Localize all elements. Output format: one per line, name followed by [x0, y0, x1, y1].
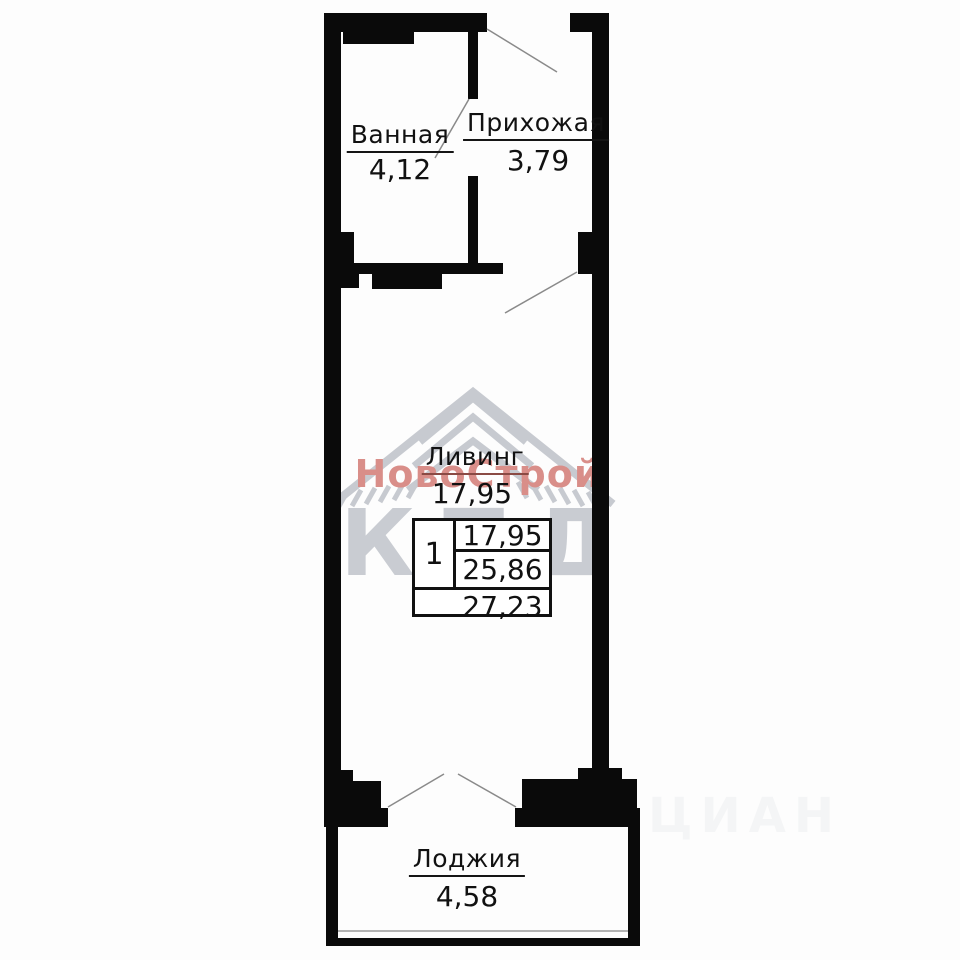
bathroom-name: Ванная	[347, 122, 454, 153]
hallway-area: 3,79	[507, 144, 569, 177]
loggia-area: 4,58	[436, 880, 498, 913]
labels-layer: Ванная 4,12 Прихожая 3,79 Ливинг 17,95 Л…	[0, 0, 960, 960]
living-area-cell: 17,95	[456, 521, 549, 552]
rooms-count-cell: 1	[415, 521, 456, 587]
room-label-loggia: Лоджия	[409, 846, 525, 877]
room-label-hallway: Прихожая	[463, 110, 609, 141]
living-name: Ливинг	[422, 444, 529, 475]
bathroom-area: 4,12	[369, 153, 431, 186]
hallway-name: Прихожая	[463, 110, 609, 141]
total-area-cell: 27,23	[415, 587, 549, 623]
floor-plan-canvas: КПД НовоСтрой ЦИАН	[0, 0, 960, 960]
living-area-label: 17,95	[432, 477, 512, 510]
area-info-table: 1 17,95 25,86 27,23	[412, 518, 552, 617]
room-label-bathroom: Ванная	[347, 122, 454, 153]
loggia-name: Лоджия	[409, 846, 525, 877]
room-label-living: Ливинг	[422, 444, 529, 475]
apartment-area-cell: 25,86	[456, 552, 549, 587]
